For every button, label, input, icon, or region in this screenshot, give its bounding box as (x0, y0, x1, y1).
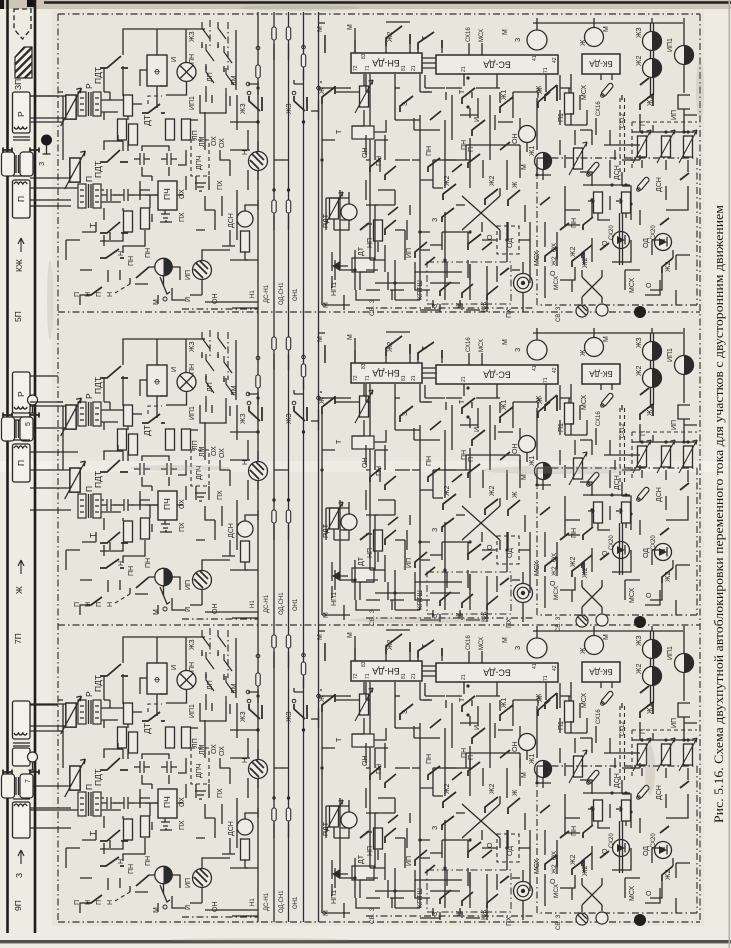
svg-text:Рис. 5.16. Схема двухпутной ав: Рис. 5.16. Схема двухпутной автоблокиров… (712, 205, 726, 823)
